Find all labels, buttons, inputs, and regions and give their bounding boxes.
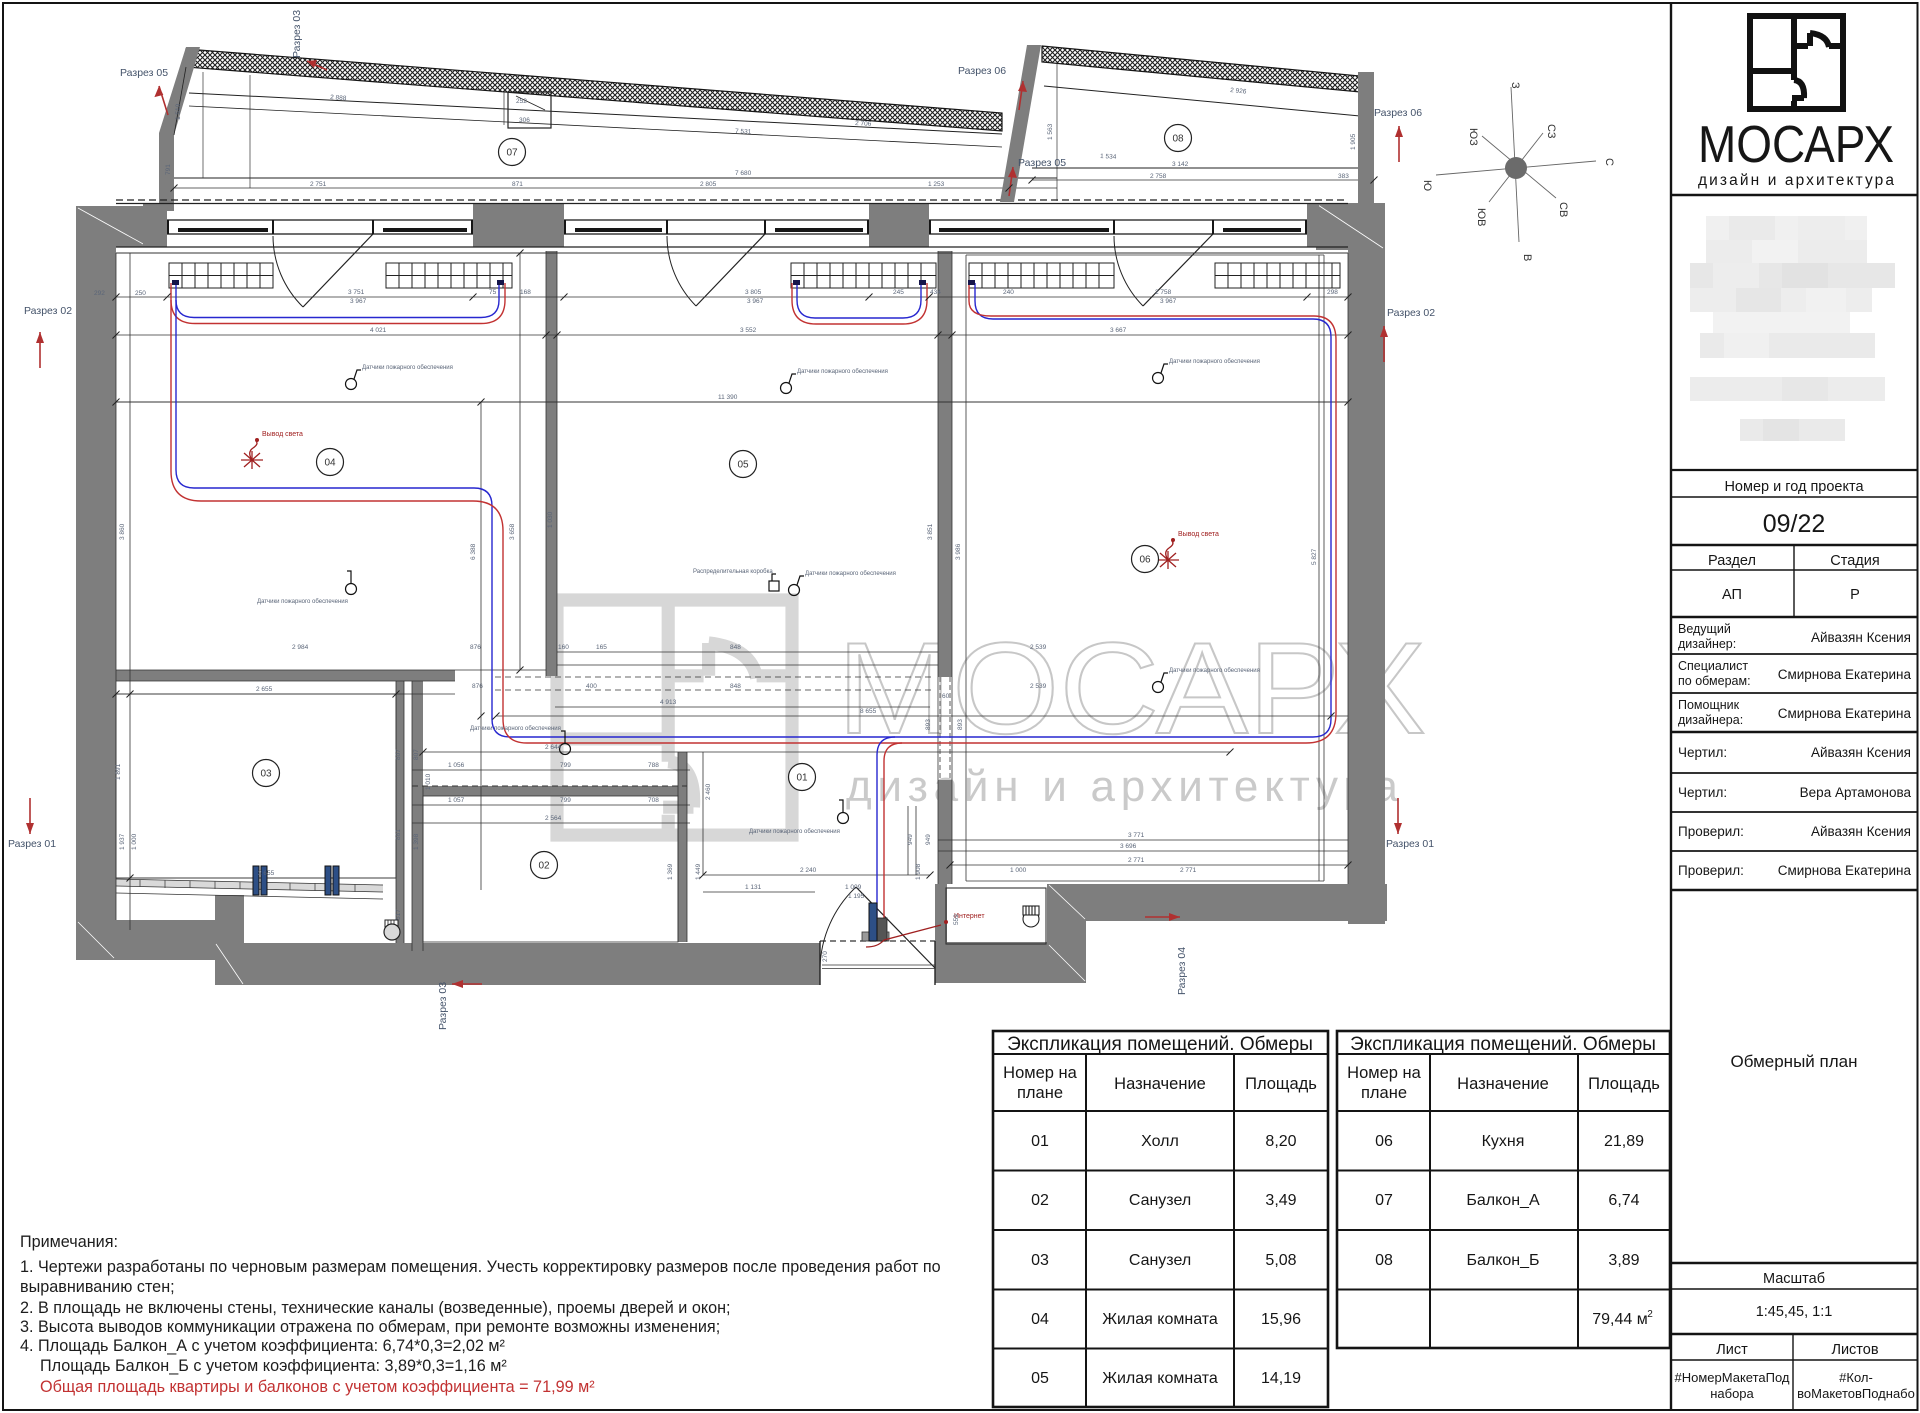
svg-text:набора: набора (1710, 1386, 1754, 1401)
svg-text:14,19: 14,19 (1261, 1370, 1301, 1387)
svg-text:3 771: 3 771 (1128, 832, 1145, 839)
svg-text:3 967: 3 967 (350, 298, 367, 305)
svg-text:#Кол-: #Кол- (1839, 1370, 1873, 1385)
svg-text:871: 871 (512, 181, 523, 188)
svg-text:11 390: 11 390 (718, 394, 738, 401)
svg-text:893: 893 (957, 719, 964, 730)
svg-text:03: 03 (260, 769, 272, 780)
svg-text:08: 08 (1375, 1252, 1393, 1269)
svg-text:2 539: 2 539 (1030, 644, 1047, 651)
svg-text:1:45,45, 1:1: 1:45,45, 1:1 (1756, 1304, 1833, 1320)
svg-text:Санузел: Санузел (1129, 1252, 1191, 1269)
svg-text:3 967: 3 967 (747, 298, 764, 305)
svg-text:1 905: 1 905 (1350, 133, 1357, 150)
svg-text:15,96: 15,96 (1261, 1311, 1301, 1328)
svg-text:01: 01 (796, 773, 808, 784)
svg-text:848: 848 (730, 683, 741, 690)
svg-text:Площадь Балкон_Б с учетом коэф: Площадь Балкон_Б с учетом коэффициента: … (40, 1357, 507, 1375)
svg-text:03: 03 (1031, 1252, 1049, 1269)
svg-text:Площадь: Площадь (1588, 1075, 1660, 1093)
svg-text:240: 240 (1003, 289, 1014, 296)
svg-text:Стадия: Стадия (1830, 553, 1879, 569)
svg-text:Разрез 04: Разрез 04 (1176, 947, 1188, 995)
svg-text:Айвазян Ксения: Айвазян Ксения (1811, 630, 1911, 645)
svg-text:С: С (1603, 158, 1615, 166)
svg-text:8 655: 8 655 (860, 708, 877, 715)
svg-text:#НомерМакетаПод: #НомерМакетаПод (1675, 1370, 1790, 1385)
svg-text:СЗ: СЗ (1545, 124, 1557, 139)
svg-text:07: 07 (1375, 1192, 1393, 1209)
svg-text:Санузел: Санузел (1129, 1192, 1191, 1209)
svg-text:2 655: 2 655 (258, 870, 275, 877)
svg-text:Обмерный план: Обмерный план (1731, 1052, 1858, 1071)
svg-text:5,08: 5,08 (1265, 1252, 1296, 1269)
svg-text:Смирнова Екатерина: Смирнова Екатерина (1778, 667, 1912, 682)
svg-text:04: 04 (1031, 1311, 1049, 1328)
svg-text:З: З (1509, 82, 1521, 89)
svg-text:788: 788 (648, 762, 659, 769)
svg-text:Номер и год проекта: Номер и год проекта (1724, 479, 1864, 495)
svg-text:383: 383 (1338, 173, 1349, 180)
svg-text:Масштаб: Масштаб (1763, 1271, 1825, 1287)
svg-text:848: 848 (730, 644, 741, 651)
svg-text:СВ: СВ (1557, 202, 1569, 217)
svg-text:Вывод света: Вывод света (262, 431, 303, 438)
svg-text:799: 799 (560, 762, 571, 769)
svg-text:298: 298 (1327, 289, 1338, 296)
svg-text:Жилая комната: Жилая комната (1102, 1370, 1218, 1387)
svg-text:Специалист: Специалист (1678, 659, 1748, 673)
svg-text:Листов: Листов (1831, 1342, 1878, 1358)
svg-text:Ведущий: Ведущий (1678, 622, 1731, 636)
svg-text:Разрез 01: Разрез 01 (8, 838, 56, 850)
svg-text:1 000: 1 000 (131, 833, 138, 850)
svg-text:05: 05 (1031, 1370, 1049, 1387)
svg-text:Проверил:: Проверил: (1678, 824, 1744, 839)
svg-text:Чертил:: Чертил: (1678, 745, 1727, 760)
svg-text:1 563: 1 563 (1047, 123, 1054, 140)
svg-text:Разрез 06: Разрез 06 (958, 65, 1006, 77)
svg-text:Разрез 05: Разрез 05 (120, 67, 168, 79)
svg-text:400: 400 (586, 683, 597, 690)
svg-text:воМакетовПоднабо: воМакетовПоднабо (1797, 1386, 1915, 1401)
svg-text:60: 60 (942, 693, 950, 700)
svg-text:Датчики пожарного обеспечения: Датчики пожарного обеспечения (797, 369, 888, 375)
svg-text:1 131: 1 131 (745, 884, 762, 891)
svg-text:Разрез 02: Разрез 02 (1387, 307, 1435, 319)
svg-text:Назначение: Назначение (1457, 1075, 1549, 1093)
svg-text:04: 04 (324, 458, 336, 469)
svg-text:2 644: 2 644 (545, 744, 562, 751)
svg-text:876: 876 (470, 644, 481, 651)
svg-text:1 937: 1 937 (119, 833, 126, 850)
svg-text:02: 02 (1031, 1192, 1049, 1209)
svg-text:07: 07 (506, 148, 518, 159)
svg-text:Датчики пожарного обеспечения: Датчики пожарного обеспечения (257, 599, 348, 605)
svg-text:Разрез 03: Разрез 03 (291, 10, 303, 58)
svg-text:Датчики пожарного обеспечения: Датчики пожарного обеспечения (749, 829, 840, 835)
svg-text:2 539: 2 539 (1030, 683, 1047, 690)
svg-text:Экспликация помещений. Обмеры: Экспликация помещений. Обмеры (1007, 1034, 1313, 1055)
svg-text:807: 807 (395, 749, 402, 760)
svg-text:Смирнова Екатерина: Смирнова Екатерина (1778, 706, 1912, 721)
svg-text:Экспликация помещений. Обмеры: Экспликация помещений. Обмеры (1350, 1034, 1656, 1055)
svg-text:270: 270 (822, 951, 829, 962)
svg-text:Холл: Холл (1141, 1133, 1179, 1150)
svg-text:Датчики пожарного обеспечения: Датчики пожарного обеспечения (470, 726, 561, 732)
svg-text:АП: АП (1722, 587, 1742, 603)
svg-text:4 021: 4 021 (370, 327, 387, 334)
svg-text:517: 517 (395, 909, 402, 920)
svg-text:Разрез 05: Разрез 05 (1018, 157, 1066, 169)
svg-text:893: 893 (925, 719, 932, 730)
svg-text:1 398: 1 398 (413, 833, 420, 850)
svg-text:165: 165 (596, 644, 607, 651)
svg-text:ЮЗ: ЮЗ (1467, 128, 1479, 146)
svg-text:Раздел: Раздел (1708, 553, 1756, 569)
svg-text:75: 75 (489, 289, 497, 296)
svg-text:2 771: 2 771 (1180, 867, 1197, 874)
svg-text:Чертил:: Чертил: (1678, 785, 1727, 800)
svg-text:1 057: 1 057 (448, 797, 465, 804)
svg-text:1 908: 1 908 (915, 863, 922, 880)
svg-text:3,49: 3,49 (1265, 1192, 1296, 1209)
svg-text:1 510: 1 510 (175, 103, 182, 120)
svg-text:949: 949 (907, 834, 914, 845)
svg-text:01: 01 (1031, 1133, 1049, 1150)
svg-text:Жилая комната: Жилая комната (1102, 1311, 1218, 1328)
svg-text:6 388: 6 388 (470, 543, 477, 560)
svg-text:2 564: 2 564 (545, 815, 562, 822)
svg-text:Разрез 01: Разрез 01 (1386, 838, 1434, 850)
svg-text:807: 807 (413, 749, 420, 760)
svg-text:06: 06 (1375, 1133, 1393, 1150)
svg-text:Помощник: Помощник (1678, 698, 1740, 712)
svg-text:2 758: 2 758 (1155, 289, 1172, 296)
svg-text:плане: плане (1361, 1084, 1407, 1102)
svg-text:02: 02 (538, 861, 550, 872)
svg-text:Айвазян Ксения: Айвазян Ксения (1811, 745, 1911, 760)
svg-text:1 253: 1 253 (928, 181, 945, 188)
svg-text:Разрез 03: Разрез 03 (437, 982, 449, 1030)
svg-text:708: 708 (648, 797, 659, 804)
svg-text:2 984: 2 984 (292, 644, 309, 651)
svg-text:Ю: Ю (1421, 180, 1433, 191)
svg-text:05: 05 (737, 460, 749, 471)
svg-text:5 827: 5 827 (1311, 548, 1318, 565)
svg-text:3 751: 3 751 (348, 289, 365, 296)
svg-text:252: 252 (516, 98, 527, 105)
svg-text:Датчики пожарного обеспечения: Датчики пожарного обеспечения (1169, 359, 1260, 365)
svg-text:Айвазян Ксения: Айвазян Ксения (1811, 824, 1911, 839)
svg-text:2 240: 2 240 (800, 867, 817, 874)
svg-text:Разрез 06: Разрез 06 (1374, 107, 1422, 119)
svg-text:1 369: 1 369 (667, 863, 674, 880)
svg-text:3 142: 3 142 (1172, 161, 1189, 168)
svg-text:1 010: 1 010 (425, 773, 432, 790)
svg-text:Датчики пожарного обеспечения: Датчики пожарного обеспечения (1169, 668, 1260, 674)
svg-text:4. Площадь Балкон_А с учетом к: 4. Площадь Балкон_А с учетом коэффициент… (20, 1337, 506, 1355)
svg-text:79,44 м: 79,44 м (1592, 1311, 1647, 1328)
svg-text:245: 245 (893, 289, 904, 296)
svg-text:7 531: 7 531 (735, 128, 752, 136)
svg-text:дизайнера:: дизайнера: (1678, 713, 1743, 727)
svg-text:160: 160 (558, 644, 569, 651)
svg-text:2 751: 2 751 (310, 181, 327, 188)
svg-text:3 860: 3 860 (119, 523, 126, 540)
svg-text:Общая площадь квартиры и балко: Общая площадь квартиры и балконов с учет… (40, 1378, 595, 1396)
svg-text:2 888: 2 888 (330, 94, 347, 102)
svg-text:791: 791 (165, 164, 172, 175)
svg-text:2 460: 2 460 (705, 783, 712, 800)
svg-text:Датчики пожарного обеспечения: Датчики пожарного обеспечения (362, 365, 453, 371)
svg-text:выравниванию стен;: выравниванию стен; (20, 1278, 175, 1296)
svg-text:799: 799 (560, 797, 571, 804)
svg-text:Балкон_А: Балкон_А (1466, 1192, 1540, 1209)
svg-text:Разрез 02: Разрез 02 (24, 305, 72, 317)
svg-text:1 534: 1 534 (1100, 153, 1117, 161)
svg-text:3 667: 3 667 (1110, 327, 1127, 334)
svg-text:МОСАРХ: МОСАРХ (1698, 116, 1894, 174)
svg-text:3 851: 3 851 (927, 523, 934, 540)
svg-text:Примечания:: Примечания: (20, 1233, 118, 1251)
svg-text:2 805: 2 805 (700, 181, 717, 188)
svg-text:МОСАРХ: МОСАРХ (837, 615, 1426, 761)
svg-text:Площадь: Площадь (1245, 1075, 1317, 1093)
svg-text:3,89: 3,89 (1608, 1252, 1639, 1269)
svg-text:Вывод света: Вывод света (1178, 531, 1219, 538)
svg-text:3 552: 3 552 (740, 327, 757, 334)
svg-text:Проверил:: Проверил: (1678, 863, 1744, 878)
svg-text:949: 949 (925, 834, 932, 845)
svg-text:168: 168 (520, 289, 531, 296)
svg-text:3 696: 3 696 (1120, 843, 1137, 850)
svg-text:1 030: 1 030 (547, 511, 554, 528)
svg-text:дизайнер:: дизайнер: (1678, 637, 1736, 651)
svg-text:Датчики пожарного обеспечения: Датчики пожарного обеспечения (805, 571, 896, 577)
svg-text:Кухня: Кухня (1482, 1133, 1525, 1150)
svg-text:2 655: 2 655 (256, 686, 273, 693)
svg-text:559: 559 (953, 914, 960, 925)
svg-text:3 967: 3 967 (1160, 298, 1177, 305)
svg-text:В: В (1521, 254, 1533, 261)
svg-text:292: 292 (94, 290, 105, 297)
svg-text:ЮВ: ЮВ (1475, 208, 1487, 226)
svg-text:6,74: 6,74 (1608, 1192, 1639, 1209)
svg-text:2 758: 2 758 (1150, 173, 1167, 180)
svg-text:Номер на: Номер на (1347, 1064, 1421, 1082)
svg-text:876: 876 (472, 683, 483, 690)
svg-text:плане: плане (1017, 1084, 1063, 1102)
svg-text:08: 08 (1172, 134, 1184, 145)
svg-text:Балкон_Б: Балкон_Б (1466, 1252, 1539, 1269)
svg-text:2: 2 (1647, 1309, 1653, 1320)
svg-text:1 195: 1 195 (848, 893, 865, 900)
svg-text:1 056: 1 056 (448, 762, 465, 769)
svg-text:1 009: 1 009 (845, 884, 862, 891)
svg-text:Назначение: Назначение (1114, 1075, 1206, 1093)
svg-text:8,20: 8,20 (1265, 1133, 1296, 1150)
svg-text:1. Чертежи разработаны по черн: 1. Чертежи разработаны по черновым разме… (20, 1258, 941, 1276)
svg-text:250: 250 (135, 290, 146, 297)
svg-text:3. Высота выводов коммуникации: 3. Высота выводов коммуникации отражена … (20, 1318, 720, 1336)
svg-text:06: 06 (1139, 555, 1151, 566)
svg-text:2 771: 2 771 (1128, 857, 1145, 864)
svg-text:3 986: 3 986 (955, 543, 962, 560)
svg-text:Смирнова Екатерина: Смирнова Екатерина (1778, 863, 1912, 878)
svg-text:2 706: 2 706 (855, 120, 872, 128)
svg-text:Распределительная коробка: Распределительная коробка (693, 569, 773, 575)
svg-text:4 913: 4 913 (660, 699, 677, 706)
svg-text:7 680: 7 680 (735, 170, 752, 177)
svg-text:21,89: 21,89 (1604, 1133, 1644, 1150)
svg-text:3 805: 3 805 (745, 289, 762, 296)
svg-text:по обмерам:: по обмерам: (1678, 674, 1751, 688)
svg-text:861: 861 (395, 829, 402, 840)
svg-text:1 000: 1 000 (1010, 867, 1027, 874)
svg-text:306: 306 (519, 117, 530, 124)
svg-text:3 658: 3 658 (509, 523, 516, 540)
svg-text:1 891: 1 891 (115, 763, 122, 780)
svg-text:Р: Р (1850, 587, 1860, 603)
svg-text:Вера Артамонова: Вера Артамонова (1800, 785, 1912, 800)
svg-text:2. В площадь не включены стены: 2. В площадь не включены стены, техничес… (20, 1299, 731, 1317)
svg-text:Лист: Лист (1716, 1342, 1748, 1358)
svg-text:09/22: 09/22 (1763, 510, 1826, 538)
svg-text:Номер на: Номер на (1003, 1064, 1077, 1082)
